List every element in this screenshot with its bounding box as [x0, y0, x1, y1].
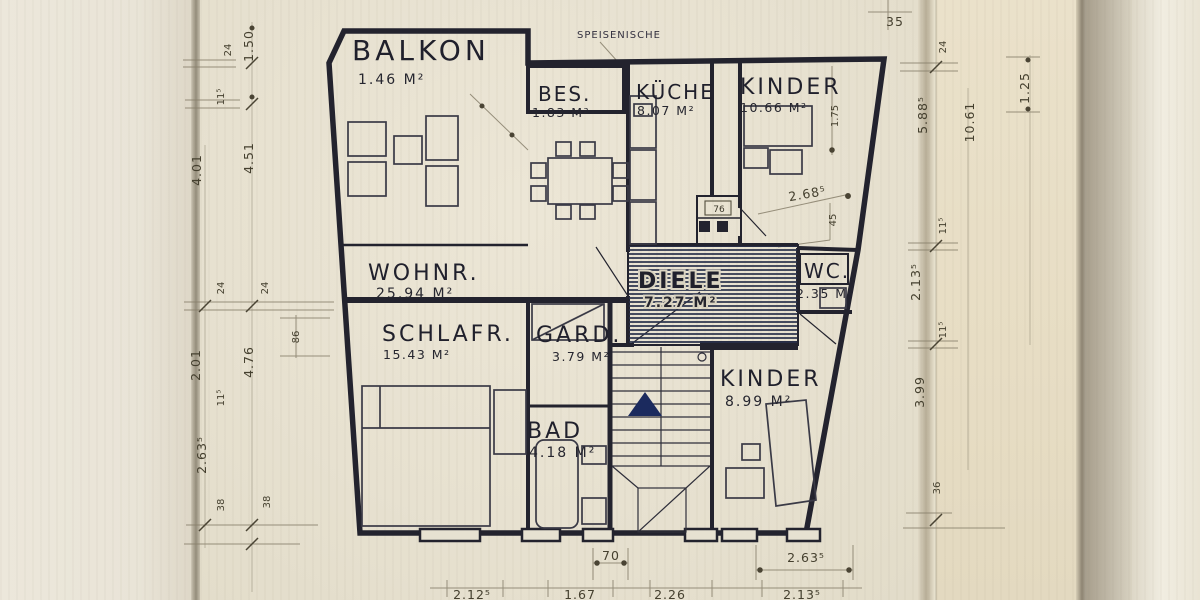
dim-bottom-2125: 2.12⁵: [453, 587, 491, 600]
dim-interior-2685: 2.68⁵: [787, 183, 827, 204]
dim-left-476: 4.76: [241, 346, 256, 378]
stairwell: [612, 347, 710, 532]
dim-bottom-2635: 2.63⁵: [787, 550, 825, 565]
room-area-diele: 7.27 M²: [644, 295, 717, 311]
dim-left-451: 4.51: [241, 142, 256, 174]
dim-right-399: 3.99: [912, 376, 927, 408]
room-label-garderobe: GARD.: [536, 323, 622, 348]
floor-plan-photo: BALKON 1.46 M² BES. 1.83 M² KÜCHE 8.07 M…: [0, 0, 1200, 600]
dim-interior-76: 76: [713, 205, 725, 215]
dim-left-86: 86: [291, 331, 302, 344]
dim-bottom-2135: 2.13⁵: [783, 587, 821, 600]
dim-left-115a: 11⁵: [216, 89, 227, 106]
annotation-speisenische: SPEISENISCHE: [577, 30, 661, 41]
dim-bottom-226: 2.26: [654, 587, 686, 600]
dim-right-2135: 2.13⁵: [908, 263, 923, 301]
room-area-wohnraum: 25.94 M²: [376, 286, 454, 302]
room-area-kinder-top: 10.66 M²: [740, 100, 808, 115]
dim-interior-175: 1.75: [830, 105, 841, 127]
room-label-balkon: BALKON: [352, 34, 490, 67]
dim-left-38b: 38: [262, 496, 273, 509]
dim-bottom-167: 1.67: [564, 587, 596, 600]
room-label-diele: DIELE: [638, 269, 724, 294]
room-area-balkon: 1.46 M²: [358, 72, 425, 88]
room-label-bad: BAD: [527, 419, 583, 444]
dim-right-125: 1.25: [1017, 72, 1032, 104]
dim-left-150: 1.50: [241, 30, 256, 62]
dim-left-38a: 38: [216, 499, 227, 512]
room-label-kinder-top: KINDER: [740, 75, 842, 100]
dim-bottom-70: 70: [602, 548, 620, 563]
dim-left-201: 2.01: [188, 349, 203, 381]
room-area-kueche: 8.07 M²: [637, 103, 695, 118]
dim-left-401: 4.01: [189, 154, 204, 186]
dim-left-24c: 24: [260, 282, 271, 295]
dim-left-115b: 11⁵: [216, 390, 227, 407]
room-label-bes: BES.: [538, 82, 591, 106]
dim-left-2635: 2.63⁵: [194, 436, 209, 474]
dim-right-1061: 10.61: [962, 102, 977, 143]
room-area-schlafzimmer: 15.43 M²: [383, 347, 451, 362]
room-label-kueche: KÜCHE: [636, 80, 715, 104]
room-label-schlafzimmer: SCHLAFR.: [382, 322, 514, 347]
room-label-wc: WC.: [804, 259, 850, 283]
dim-right-24: 24: [938, 41, 949, 54]
room-area-bes: 1.83 M²: [532, 105, 590, 120]
dim-right-5885: 5.88⁵: [915, 96, 930, 134]
dim-interior-45: 45: [828, 214, 839, 227]
room-area-wc: 2.35 M²: [796, 286, 854, 301]
dim-right-115b: 11⁵: [938, 322, 949, 339]
floor-plan-drawing: BALKON 1.46 M² BES. 1.83 M² KÜCHE 8.07 M…: [0, 0, 1200, 600]
dim-right-115a: 11⁵: [938, 218, 949, 235]
dim-right-35: 35: [886, 14, 904, 29]
dim-right-36: 36: [932, 482, 943, 495]
room-area-kinder-bottom: 8.99 M²: [725, 394, 792, 410]
room-area-bad: 4.18 M²: [529, 445, 596, 461]
dim-left-24b: 24: [216, 282, 227, 295]
dim-left-24a: 24: [223, 44, 234, 57]
room-area-garderobe: 3.79 M²: [552, 349, 610, 364]
room-label-kinder-bottom: KINDER: [720, 367, 822, 392]
room-label-wohnraum: WOHNR.: [368, 261, 480, 286]
